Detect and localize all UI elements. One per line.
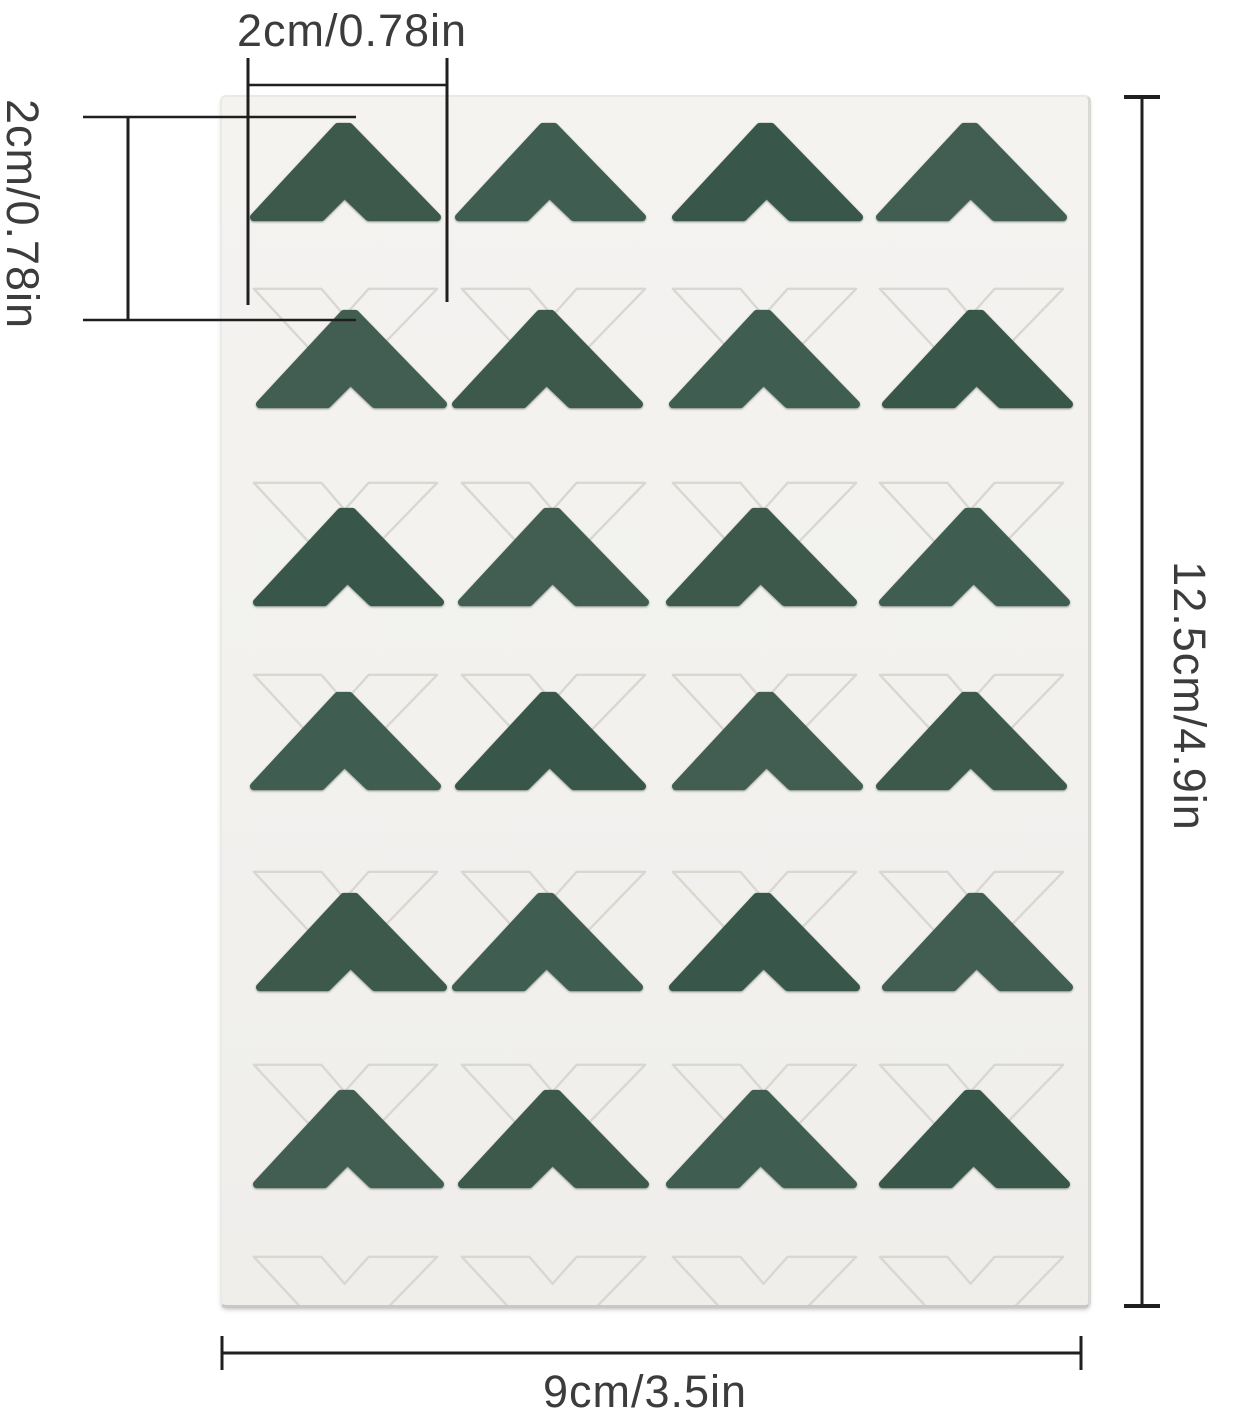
corner-sticker-shape (260, 314, 443, 405)
corner-sticker-shape (883, 512, 1066, 603)
corner-sticker (451, 889, 644, 993)
corner-sticker (255, 306, 448, 410)
die-cut-outline-shape (462, 1257, 645, 1308)
sticker-sheet (220, 95, 1091, 1308)
corner-sticker-shape (254, 127, 437, 218)
corner-sticker-shape (673, 314, 856, 405)
top-width-label: 2cm/0.78in (152, 8, 552, 54)
corner-sticker-shape (673, 897, 856, 988)
corner-sticker-shape (670, 512, 853, 603)
corner-sticker (875, 119, 1068, 223)
corner-sticker (878, 504, 1071, 608)
corner-sticker-shape (880, 127, 1063, 218)
corner-sticker-shape (462, 1094, 645, 1185)
corner-sticker (881, 306, 1074, 410)
corner-sticker-shape (676, 696, 859, 787)
corner-sticker (252, 504, 445, 608)
die-cut-outline-shape (673, 1257, 856, 1308)
corner-sticker-shape (676, 127, 859, 218)
corner-sticker-shape (260, 897, 443, 988)
corner-sticker (878, 1086, 1071, 1190)
corner-sticker (454, 119, 647, 223)
product-dimension-diagram: 2cm/0.78in 2cm/0.78in 12.5cm/4.9in 9cm/3… (0, 0, 1236, 1428)
bottom-width-label: 9cm/3.5in (445, 1369, 845, 1415)
corner-sticker (451, 306, 644, 410)
corner-sticker (665, 504, 858, 608)
corner-sticker-shape (257, 512, 440, 603)
corner-sticker (457, 504, 650, 608)
corner-sticker-shape (886, 314, 1069, 405)
die-cut-outline (457, 1251, 650, 1308)
corner-sticker (252, 1086, 445, 1190)
corner-sticker-shape (459, 696, 642, 787)
corner-sticker-shape (254, 696, 437, 787)
corner-sticker (875, 688, 1068, 792)
corner-sticker-shape (883, 1094, 1066, 1185)
corner-sticker (671, 688, 864, 792)
corner-sticker-shape (462, 512, 645, 603)
corner-sticker (665, 1086, 858, 1190)
corner-sticker (454, 688, 647, 792)
left-height-label: 2cm/0.78in (0, 84, 45, 344)
corner-sticker (668, 889, 861, 993)
corner-sticker-shape (456, 314, 639, 405)
die-cut-outline (668, 1251, 861, 1308)
corner-sticker-shape (886, 897, 1069, 988)
corner-sticker (457, 1086, 650, 1190)
corner-sticker-shape (456, 897, 639, 988)
corner-sticker (671, 119, 864, 223)
corner-sticker (255, 889, 448, 993)
die-cut-outline (875, 1251, 1068, 1308)
corner-sticker-shape (880, 696, 1063, 787)
corner-sticker-shape (257, 1094, 440, 1185)
die-cut-outline-shape (254, 1257, 437, 1308)
right-height-label: 12.5cm/4.9in (1164, 546, 1212, 846)
die-cut-outline (249, 1251, 442, 1308)
corner-sticker (668, 306, 861, 410)
die-cut-outline-shape (880, 1257, 1063, 1308)
corner-sticker-shape (670, 1094, 853, 1185)
corner-sticker (249, 119, 442, 223)
corner-sticker (249, 688, 442, 792)
corner-sticker (881, 889, 1074, 993)
corner-sticker-shape (459, 127, 642, 218)
